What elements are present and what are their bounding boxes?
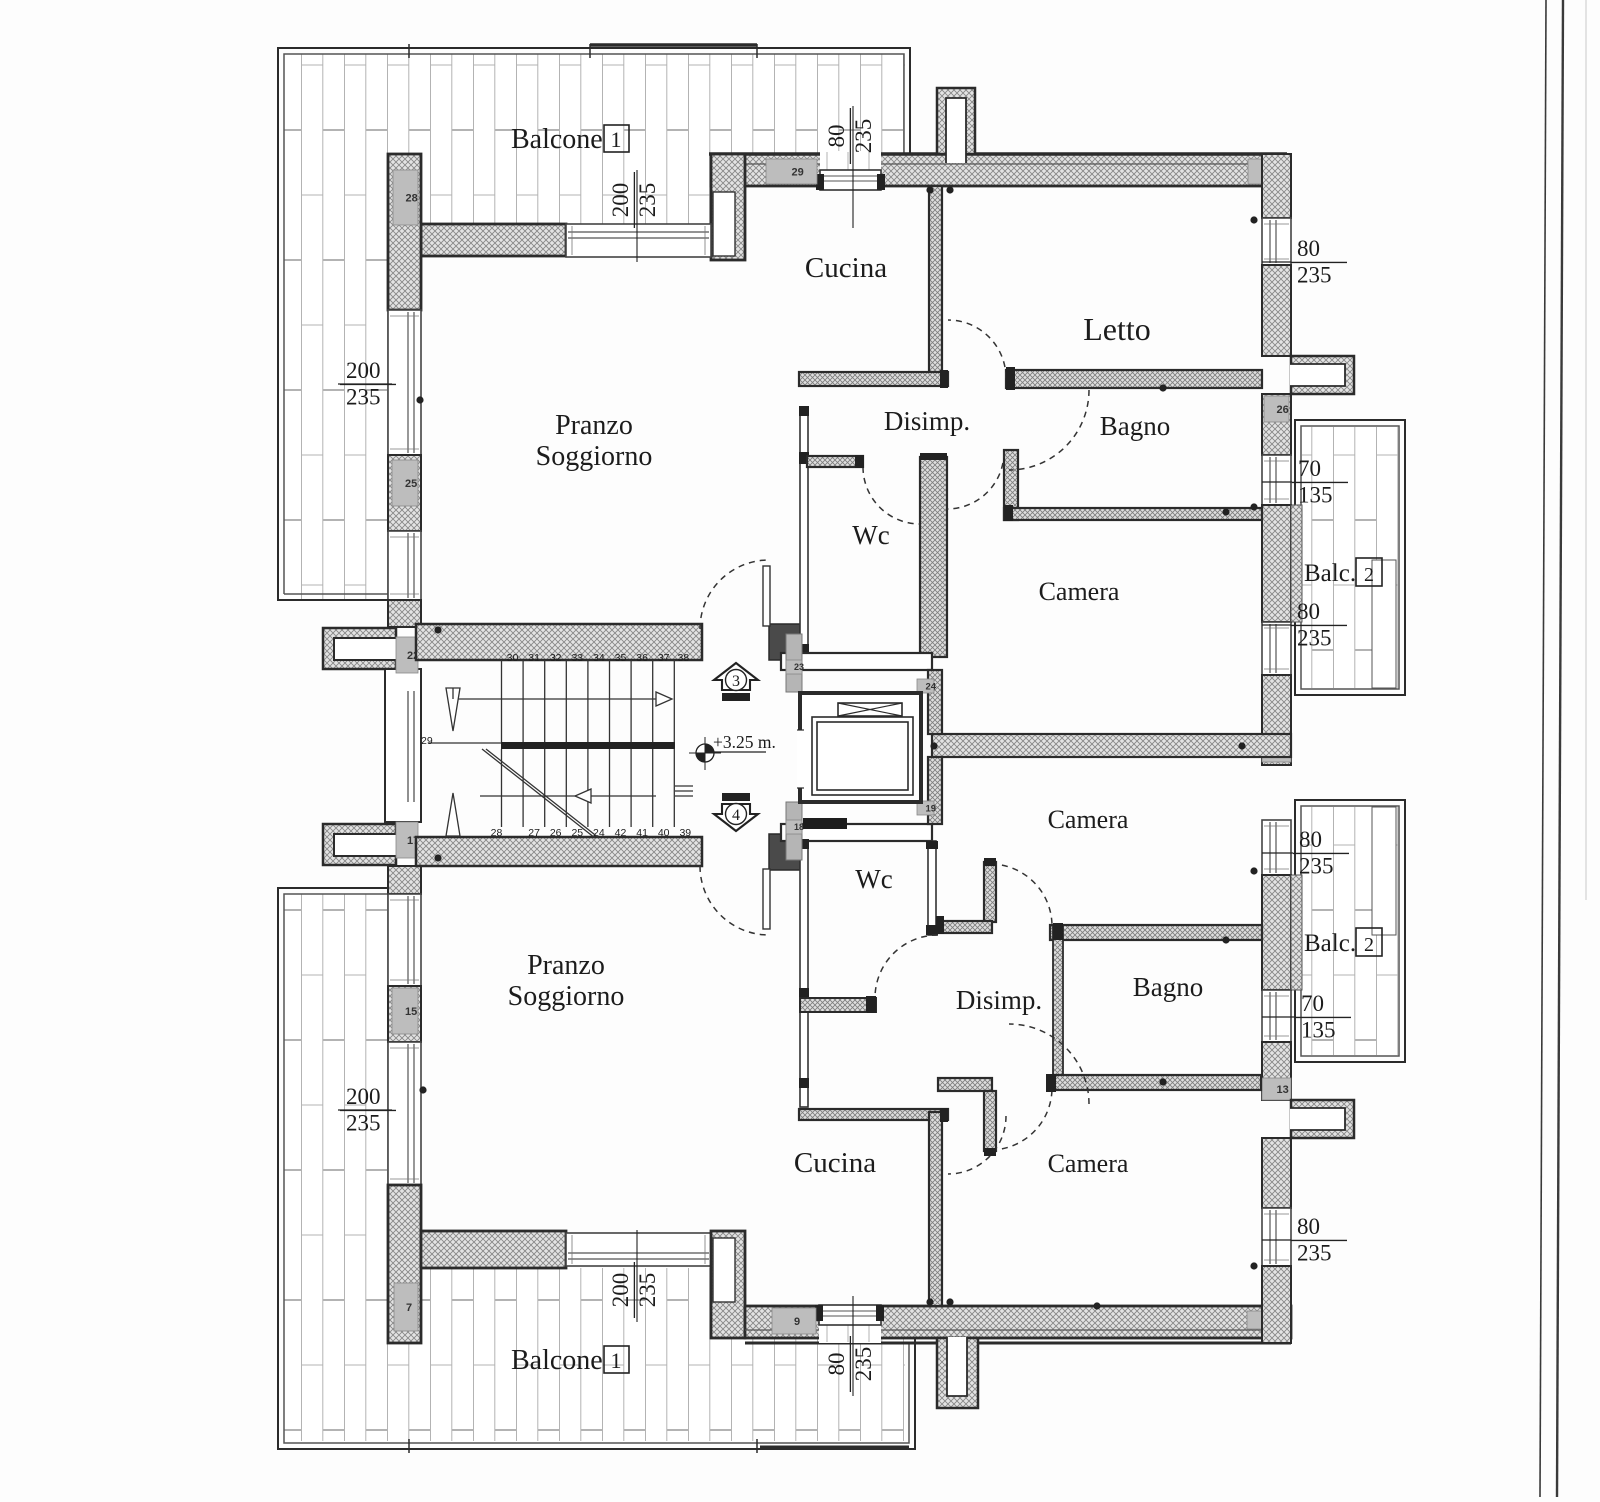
svg-text:80: 80 [1297,236,1320,261]
svg-text:235: 235 [1297,263,1332,288]
svg-text:Camera: Camera [1039,577,1120,606]
svg-text:Disimp.: Disimp. [884,406,970,436]
svg-text:27: 27 [528,827,540,839]
svg-text:32: 32 [550,652,562,664]
svg-text:1: 1 [611,127,622,152]
svg-text:2: 2 [1364,934,1374,956]
svg-text:30: 30 [507,652,519,664]
svg-text:80: 80 [824,1353,849,1376]
svg-text:135: 135 [1298,483,1333,508]
svg-text:70: 70 [1298,456,1321,481]
svg-text:235: 235 [635,1273,660,1308]
svg-text:235: 235 [851,1347,876,1382]
svg-text:70: 70 [1301,991,1324,1016]
svg-text:Balcone: Balcone [511,124,603,155]
svg-text:4: 4 [732,807,740,824]
svg-text:2: 2 [1364,564,1374,586]
svg-text:Wc: Wc [852,520,889,550]
svg-text:Pranzo: Pranzo [527,950,605,981]
svg-text:18: 18 [794,822,804,832]
svg-text:80: 80 [1297,1214,1320,1239]
svg-text:37: 37 [658,652,670,664]
svg-text:31: 31 [528,652,540,664]
svg-text:235: 235 [346,1111,381,1136]
svg-text:9: 9 [794,1316,800,1328]
svg-text:80: 80 [1299,827,1322,852]
svg-text:200: 200 [608,183,633,218]
svg-text:235: 235 [851,119,876,154]
svg-text:19: 19 [926,803,937,814]
svg-text:39: 39 [679,827,691,839]
svg-text:200: 200 [346,358,381,383]
svg-text:235: 235 [346,385,381,410]
svg-text:23: 23 [794,662,804,672]
svg-text:7: 7 [406,1302,412,1314]
svg-text:1: 1 [611,1348,622,1373]
svg-text:25: 25 [571,827,583,839]
svg-text:Camera: Camera [1048,1149,1129,1178]
svg-text:24: 24 [926,681,937,692]
svg-text:235: 235 [1299,854,1334,879]
svg-text:3: 3 [732,673,740,690]
svg-text:36: 36 [636,652,648,664]
svg-text:Soggiorno: Soggiorno [536,441,653,472]
svg-text:28: 28 [491,827,503,839]
svg-text:29: 29 [792,166,804,178]
svg-text:38: 38 [677,652,689,664]
svg-text:235: 235 [1297,626,1332,651]
svg-text:15: 15 [405,1006,417,1018]
svg-text:34: 34 [593,652,605,664]
svg-text:33: 33 [571,652,583,664]
svg-text:26: 26 [550,827,562,839]
svg-text:200: 200 [346,1084,381,1109]
svg-text:42: 42 [615,827,627,839]
svg-text:35: 35 [615,652,627,664]
svg-text:Balc.: Balc. [1304,560,1356,587]
svg-text:80: 80 [1297,599,1320,624]
svg-text:Cucina: Cucina [794,1147,876,1179]
svg-text:Bagno: Bagno [1100,411,1171,441]
svg-text:Bagno: Bagno [1133,972,1204,1002]
svg-text:41: 41 [636,827,648,839]
svg-text:Balc.: Balc. [1304,930,1356,957]
svg-text:Wc: Wc [855,864,892,894]
svg-text:+3.25 m.: +3.25 m. [713,732,776,752]
svg-text:Pranzo: Pranzo [555,410,633,441]
svg-text:Soggiorno: Soggiorno [508,981,625,1012]
svg-text:13: 13 [1277,1084,1289,1096]
svg-text:Camera: Camera [1048,805,1129,834]
svg-text:Cucina: Cucina [805,252,887,284]
svg-text:26: 26 [1277,404,1289,416]
svg-text:28: 28 [406,192,418,204]
svg-text:29: 29 [421,735,433,747]
svg-text:Disimp.: Disimp. [956,985,1042,1015]
svg-text:Balcone: Balcone [511,1345,603,1376]
svg-text:Letto: Letto [1083,311,1151,347]
svg-text:135: 135 [1301,1018,1336,1043]
svg-text:235: 235 [635,183,660,218]
svg-text:80: 80 [824,125,849,148]
svg-text:200: 200 [608,1273,633,1308]
svg-text:25: 25 [405,478,417,490]
svg-text:40: 40 [658,827,670,839]
svg-text:235: 235 [1297,1241,1332,1266]
